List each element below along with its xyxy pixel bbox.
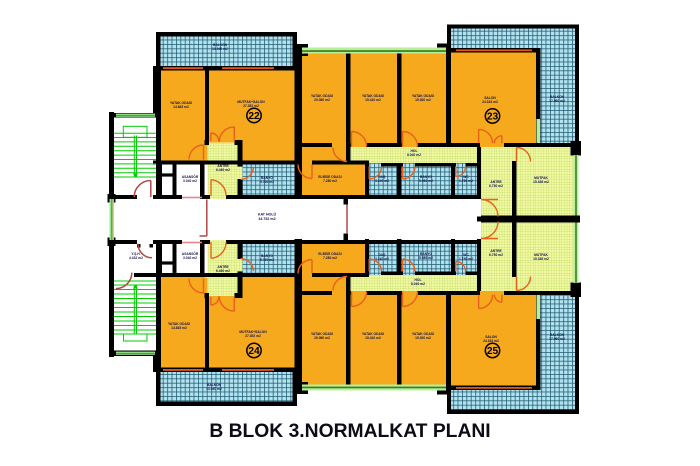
svg-text:5.760 m2: 5.760 m2 [260,180,274,184]
svg-text:1.780 m2: 1.780 m2 [459,179,473,183]
svg-text:8.040 m2: 8.040 m2 [407,153,421,157]
svg-text:34.752 m2: 34.752 m2 [258,217,275,221]
svg-text:7.280 m2: 7.280 m2 [323,179,337,183]
svg-text:20.080 m2: 20.080 m2 [314,336,330,340]
svg-text:15.300 m2: 15.300 m2 [415,98,431,102]
svg-text:17.960 m2: 17.960 m2 [549,99,565,103]
svg-text:17.960 m2: 17.960 m2 [549,337,565,341]
svg-text:3.240 m2: 3.240 m2 [375,179,389,183]
svg-text:25: 25 [487,346,499,357]
svg-text:3.240 m2: 3.240 m2 [375,257,389,261]
svg-text:7.280 m2: 7.280 m2 [323,256,337,260]
svg-text:14.845 m2: 14.845 m2 [171,326,187,330]
svg-text:23: 23 [487,112,499,123]
svg-text:KAT HOLÜ: KAT HOLÜ [258,212,277,217]
svg-text:13.040 m2: 13.040 m2 [206,387,222,391]
svg-text:24: 24 [248,346,260,357]
svg-text:3.040 m2: 3.040 m2 [183,179,197,183]
svg-text:1.780 m2: 1.780 m2 [459,257,473,261]
svg-text:20.080 m2: 20.080 m2 [314,98,330,102]
svg-text:8.040 m2: 8.040 m2 [411,282,425,286]
svg-text:14.845 m2: 14.845 m2 [173,105,189,109]
svg-text:5.760 m2: 5.760 m2 [260,258,274,262]
svg-text:6.460 m2: 6.460 m2 [216,269,230,273]
svg-text:27.352 m2: 27.352 m2 [245,334,261,338]
svg-text:24.163 m2: 24.163 m2 [483,339,499,343]
svg-text:6.750 m2: 6.750 m2 [489,253,503,257]
svg-text:B BLOK 3.NORMALKAT PLANI: B BLOK 3.NORMALKAT PLANI [209,421,490,442]
svg-text:13.040 m2: 13.040 m2 [212,47,228,51]
svg-text:6.460 m2: 6.460 m2 [216,168,230,172]
svg-text:24.163 m2: 24.163 m2 [482,100,498,104]
svg-text:5.980 m2: 5.980 m2 [419,179,433,183]
svg-text:5.980 m2: 5.980 m2 [419,256,433,260]
svg-text:15.338 m2: 15.338 m2 [533,257,549,261]
svg-text:27.352 m2: 27.352 m2 [243,104,259,108]
svg-text:15.338 m2: 15.338 m2 [533,180,549,184]
svg-text:15.300 m2: 15.300 m2 [415,336,431,340]
svg-text:4.432 m2: 4.432 m2 [129,256,143,260]
svg-text:6.750 m2: 6.750 m2 [489,184,503,188]
svg-text:3.040 m2: 3.040 m2 [183,256,197,260]
svg-text:15.410 m2: 15.410 m2 [365,336,381,340]
svg-text:15.410 m2: 15.410 m2 [365,98,381,102]
svg-text:22: 22 [248,111,260,122]
